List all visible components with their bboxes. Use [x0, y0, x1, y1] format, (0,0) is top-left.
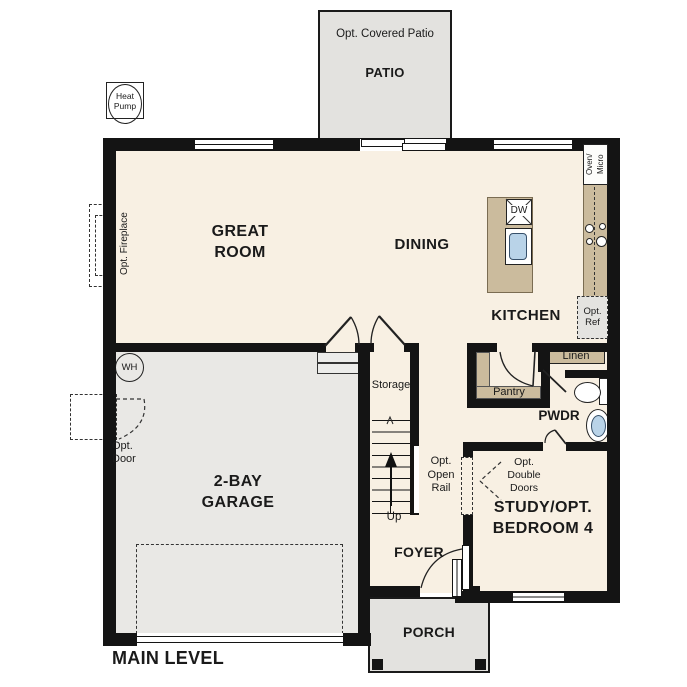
heat-pump-box: HeatPump	[106, 82, 144, 119]
wall-segment	[103, 138, 116, 646]
water-heater-icon: WH	[115, 353, 144, 382]
opt-door-label: Opt.Door	[112, 440, 154, 466]
sliding-door-panel	[361, 139, 405, 147]
wall-segment	[358, 343, 370, 633]
wall-segment	[103, 633, 137, 646]
stair-up-arrow-stem	[390, 466, 392, 506]
up-label: Up	[374, 511, 414, 523]
wall-segment	[115, 343, 326, 352]
window	[493, 139, 573, 150]
linen-label: Linen	[547, 350, 605, 362]
great-room-label: GREATROOM	[165, 221, 315, 263]
storage-label: Storage	[370, 379, 412, 391]
dining-label: DINING	[360, 234, 484, 255]
sliding-door-panel	[402, 143, 446, 151]
garage-bay-outline	[136, 544, 343, 634]
garage-label: 2-BAYGARAGE	[163, 471, 313, 513]
wall-segment	[467, 399, 550, 408]
wall-segment	[463, 442, 543, 451]
burner-icon	[585, 224, 594, 233]
pwdr-label: PWDR	[528, 408, 590, 423]
wall-segment	[565, 370, 620, 378]
pantry-label: Pantry	[479, 386, 539, 398]
opt-fireplace-label: Opt. Fireplace	[119, 200, 136, 288]
oven-micro-label: Oven/ Micro	[584, 145, 607, 184]
patio-opt-label: Opt. Covered Patio	[318, 28, 452, 40]
porch-post	[372, 659, 383, 670]
opt-open-rail-label: Opt.OpenRail	[418, 455, 464, 496]
garage-door	[137, 636, 343, 643]
wall-segment	[467, 343, 497, 352]
island-sink-basin	[509, 233, 527, 260]
study-label: STUDY/OPT.BEDROOM 4	[468, 497, 618, 539]
front-door-panel	[462, 545, 470, 590]
wall-segment	[538, 350, 546, 372]
sidelight-window	[452, 559, 462, 597]
wall-segment	[566, 442, 620, 451]
opt-double-doors-label: Opt.DoubleDoors	[490, 456, 558, 495]
wall-segment	[343, 633, 371, 646]
burner-icon	[596, 236, 607, 247]
powder-sink	[574, 382, 601, 403]
oven-micro-cabinet: Oven/ Micro	[583, 144, 608, 185]
toilet-bowl	[591, 415, 606, 437]
porch-post	[475, 659, 486, 670]
foyer-label: FOYER	[377, 544, 461, 560]
dishwasher-label: DW	[506, 205, 532, 216]
main-level-title: MAIN LEVEL	[112, 648, 224, 669]
patio-label: PATIO	[318, 65, 452, 80]
kitchen-label: KITCHEN	[462, 305, 590, 326]
porch-label: PORCH	[368, 624, 490, 640]
heat-pump-icon: HeatPump	[108, 84, 142, 124]
window	[512, 592, 565, 602]
floor-plan: Oven/ Micro Opt.Ref HeatPump WH	[0, 0, 687, 687]
window	[194, 139, 274, 150]
stair-up-arrow-head	[385, 452, 397, 467]
wall-segment	[463, 442, 473, 457]
burner-icon	[599, 223, 606, 230]
burner-icon	[586, 238, 593, 245]
